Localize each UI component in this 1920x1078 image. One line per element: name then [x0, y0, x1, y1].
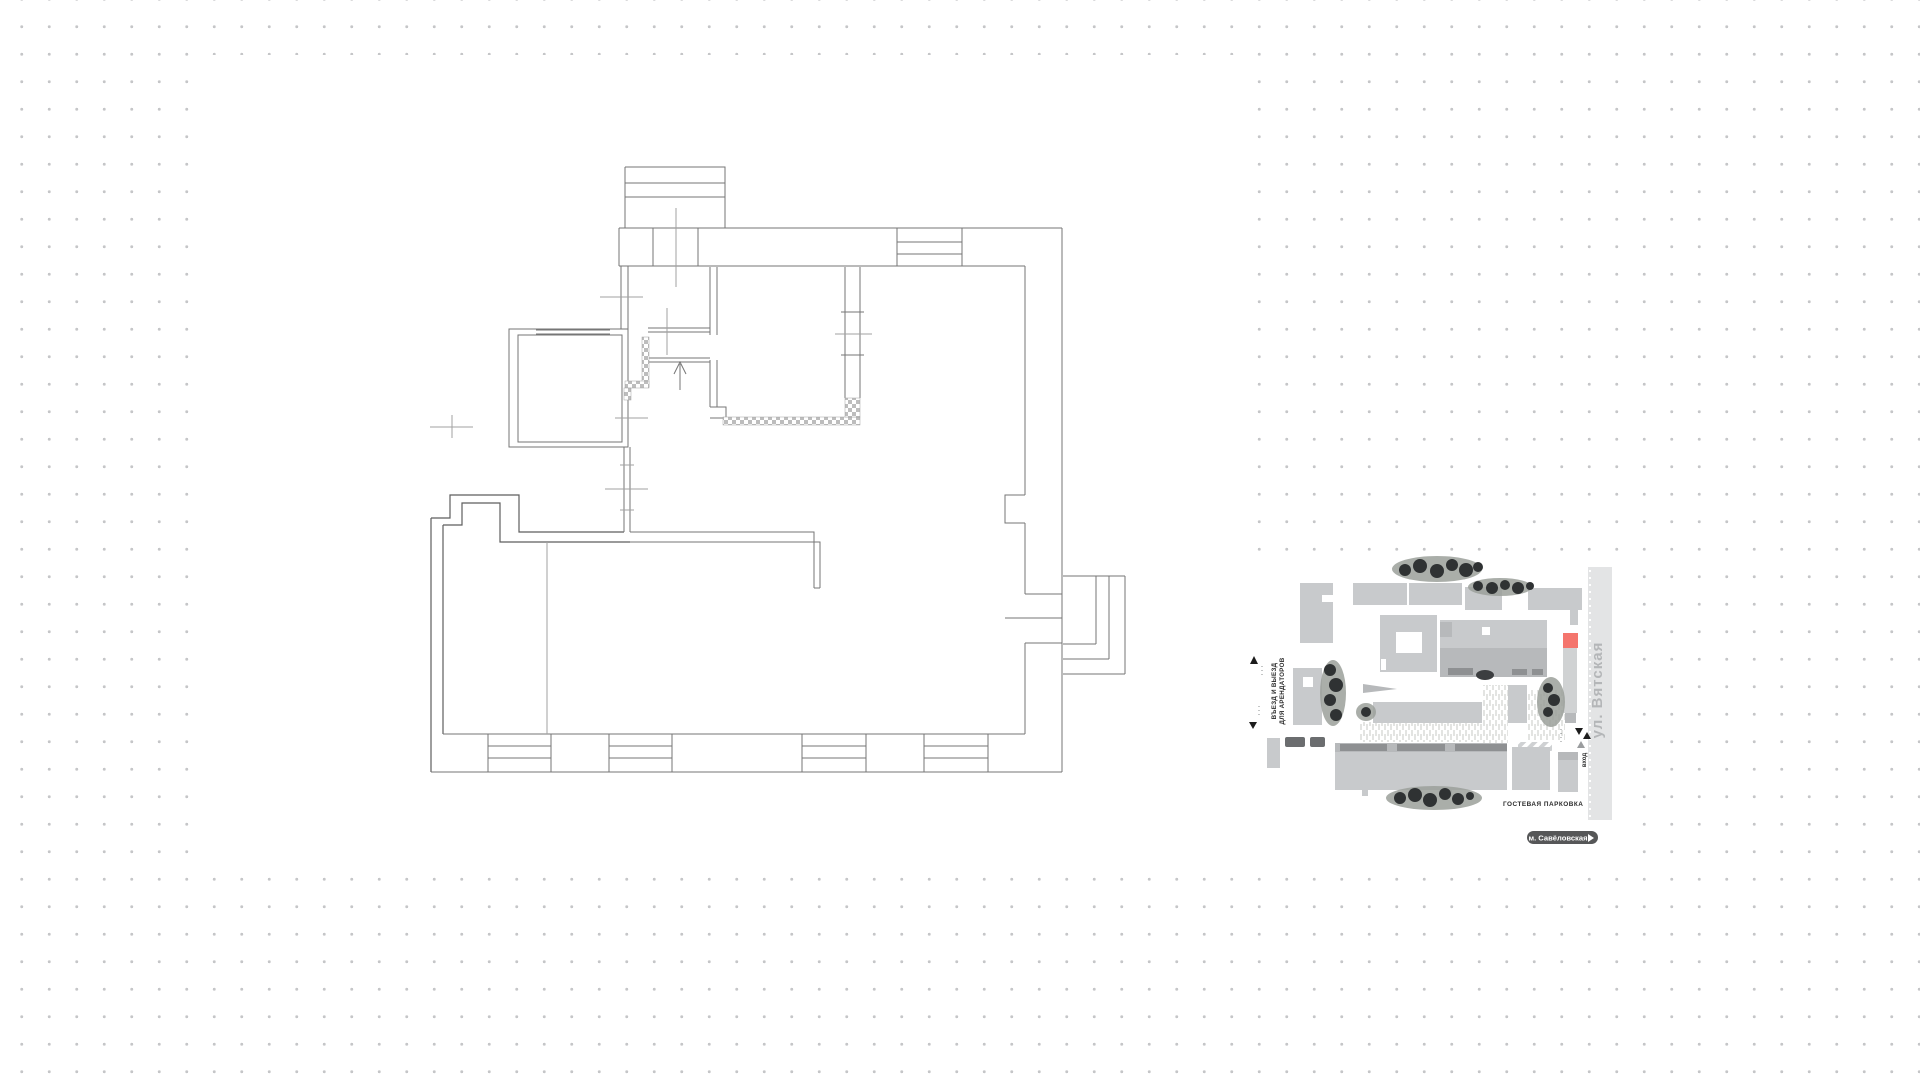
tree-cluster-right: [1537, 677, 1565, 727]
floor-plan-drawing: [430, 167, 1125, 772]
ramp-wedge: [1363, 684, 1397, 693]
building-bottom-right-part: [1512, 747, 1550, 790]
tree-cluster-bottom: [1386, 786, 1482, 810]
tree-column-left: [1320, 660, 1346, 726]
tree-cluster-top-right: [1468, 578, 1534, 596]
hatched-wall-vertical: [642, 337, 649, 387]
entrance-triangle-soft-icon: [1577, 741, 1585, 748]
left-wall-and-bay: [431, 495, 630, 772]
entrance-label: вход: [1582, 753, 1588, 767]
car-blob: [1476, 670, 1494, 680]
right-inner-wall: [1005, 266, 1025, 734]
floor-plan-annotations: [430, 208, 872, 510]
floor-plan-windows: [488, 228, 1062, 772]
hatched-wall-step: [624, 388, 631, 400]
site-buildings: [1267, 583, 1582, 796]
building-bottom-seg-1: [1340, 744, 1387, 751]
building-long-center-slit-3: [1532, 669, 1543, 675]
building-long-center-slit-2: [1512, 669, 1527, 675]
gate-in-triangle-icon: [1250, 656, 1258, 664]
right-window: [1005, 594, 1062, 643]
gate-out-triangle-icon: [1249, 722, 1257, 729]
guest-parking-label: ГОСТЕВАЯ ПАРКОВКА: [1503, 801, 1583, 808]
tree-small-mid: [1356, 703, 1376, 721]
tenant-gate-label-line2: ДЛЯ АРЕНДАТОРОВ: [1279, 657, 1286, 724]
building-long-center-window: [1482, 627, 1490, 635]
wall-x710: [710, 267, 726, 418]
building-bottom-right-small-roof: [1558, 752, 1578, 760]
building-top-right: [1528, 588, 1582, 610]
building-highlight-red-cap: [1563, 633, 1578, 648]
floor-plan-exterior-walls: [431, 167, 1062, 772]
site-plan-drawing: ул. Вятская: [1249, 556, 1612, 844]
top-wall-band: [619, 228, 1062, 266]
top-window: [897, 228, 962, 266]
building-top-right-annex: [1570, 610, 1578, 625]
bottom-wall-band: [431, 734, 1062, 772]
floor-plan-interior-walls: [509, 266, 864, 734]
stair-room-walls: [648, 328, 710, 362]
building-L-top-left: [1300, 583, 1333, 643]
parked-car-1: [1285, 737, 1305, 747]
building-mid: [1373, 702, 1482, 723]
top-left-room: [509, 329, 628, 447]
scene-drawing: ул. Вятская: [0, 0, 1920, 1078]
building-left: [1293, 668, 1322, 725]
canvas[interactable]: ул. Вятская: [0, 0, 1920, 1078]
building-top-2: [1409, 583, 1462, 605]
middle-long-wall: [630, 532, 820, 588]
dimension-crosses: [430, 297, 872, 510]
building-courtyard-void: [1396, 632, 1422, 653]
stair-direction-arrow: [674, 362, 686, 390]
building-left-small: [1267, 738, 1280, 768]
building-left-window: [1303, 677, 1313, 687]
floor-plan-hatched-walls: [624, 337, 860, 425]
building-top-1: [1353, 583, 1407, 605]
stair-steps-right: [1063, 576, 1125, 674]
building-highlight-base: [1565, 713, 1576, 723]
tenant-gate-label-line1: ВЪЕЗД И ВЫЕЗД: [1271, 662, 1278, 719]
building-long-center-slit-1: [1448, 668, 1473, 675]
parked-car-2: [1310, 737, 1325, 747]
balcony-top: [625, 167, 725, 228]
metro-station-label: м. Савёловская: [1528, 834, 1587, 843]
building-bottom-tab-1: [1362, 790, 1368, 796]
entrance-triangle-down-icon: [1575, 728, 1583, 735]
building-right-mid: [1508, 685, 1527, 723]
grass-area-right: [1482, 685, 1508, 743]
tree-cluster-top: [1392, 556, 1483, 582]
hatched-wall-block: [845, 398, 860, 417]
building-courtyard-door: [1381, 659, 1386, 670]
bottom-windows: [488, 734, 988, 772]
metro-pill: м. Савёловская: [1527, 831, 1598, 844]
site-road: ул. Вятская: [1588, 567, 1612, 820]
stair-guide-lines: [667, 208, 676, 355]
building-highlight-body: [1563, 648, 1577, 713]
wall-x845: [841, 267, 864, 398]
building-bottom-seg-3: [1455, 744, 1507, 751]
exterior-stair-steps: [1063, 576, 1125, 674]
hatched-wall-corner: [625, 381, 649, 388]
building-long-center-tower: [1440, 622, 1452, 637]
hatched-wall-long: [723, 417, 860, 425]
street-name-label: ул. Вятская: [1589, 642, 1606, 739]
building-bottom-seg-2: [1397, 744, 1445, 751]
